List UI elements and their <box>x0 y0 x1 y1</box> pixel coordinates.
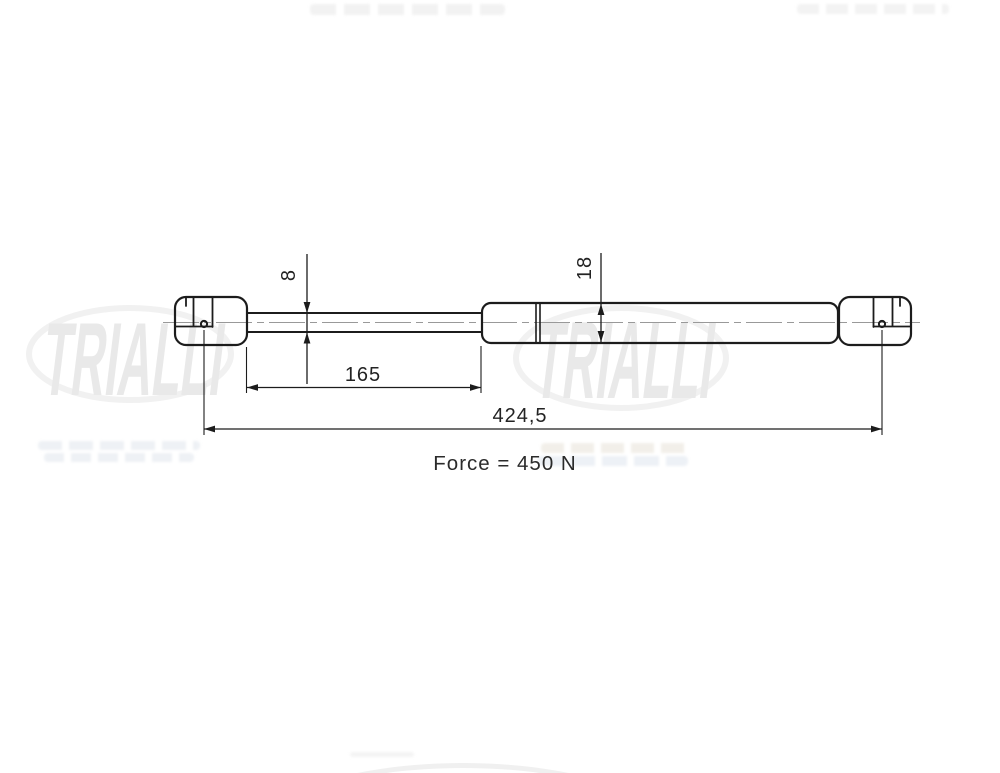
dimension-value: 424,5 <box>492 405 547 427</box>
dimension-total-length: 424,5 <box>204 330 882 435</box>
arrowhead-left <box>204 426 215 433</box>
dimension-rod-diameter: 8 <box>278 254 310 384</box>
gas-spring-technical-drawing: TRIALLI TRIALLI <box>0 0 1000 773</box>
arrowhead-right <box>470 384 481 391</box>
force-label: Force = 450 N <box>433 452 576 475</box>
dimension-value: 165 <box>345 364 381 386</box>
left-end-fitting <box>175 297 247 345</box>
arrowhead-left <box>247 384 258 391</box>
arrowhead-up <box>304 333 311 344</box>
arrowhead-right <box>871 426 882 433</box>
dimension-value: 18 <box>574 256 596 280</box>
dimension-body-diameter: 18 <box>574 253 604 343</box>
arrowhead-down <box>304 302 311 313</box>
dimension-rod-length: 165 <box>247 346 482 393</box>
dimension-value: 8 <box>278 269 300 281</box>
fitting-pivot-hole <box>879 321 885 327</box>
arrowhead-down <box>598 331 605 342</box>
fitting-pivot-hole <box>201 321 207 327</box>
arrowhead-up <box>598 304 605 315</box>
right-end-fitting <box>839 297 911 345</box>
gas-strut-outline-drawing: 8 18 165 424,5 Force = 450 N <box>0 0 1000 773</box>
